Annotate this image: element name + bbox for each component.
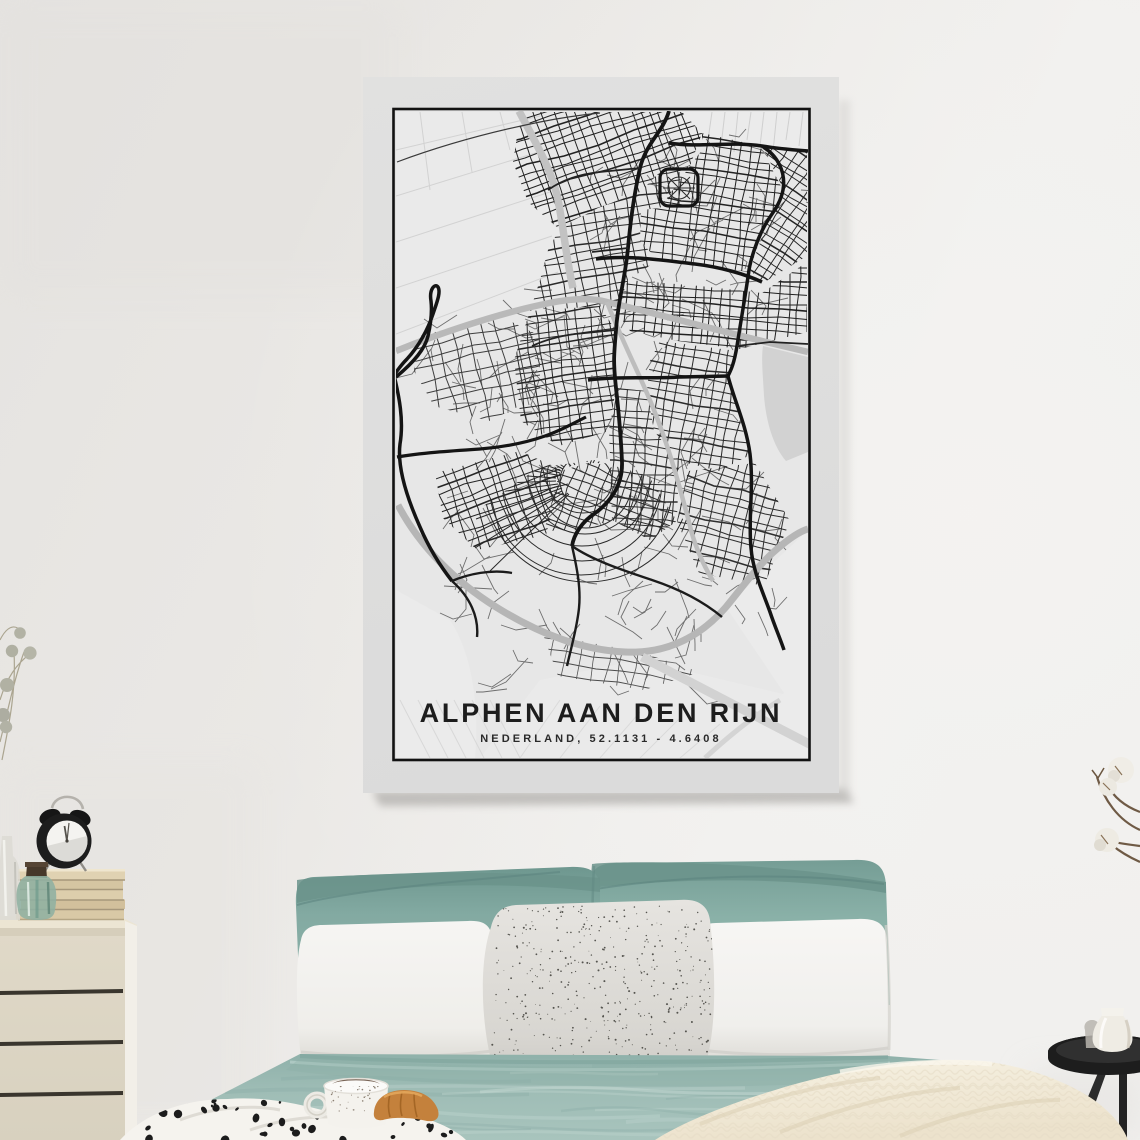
svg-text:ALPHEN AAN DEN RIJN: ALPHEN AAN DEN RIJN [420, 698, 783, 728]
svg-text:NEDERLAND, 52.1131 - 4.6408: NEDERLAND, 52.1131 - 4.6408 [480, 733, 721, 745]
